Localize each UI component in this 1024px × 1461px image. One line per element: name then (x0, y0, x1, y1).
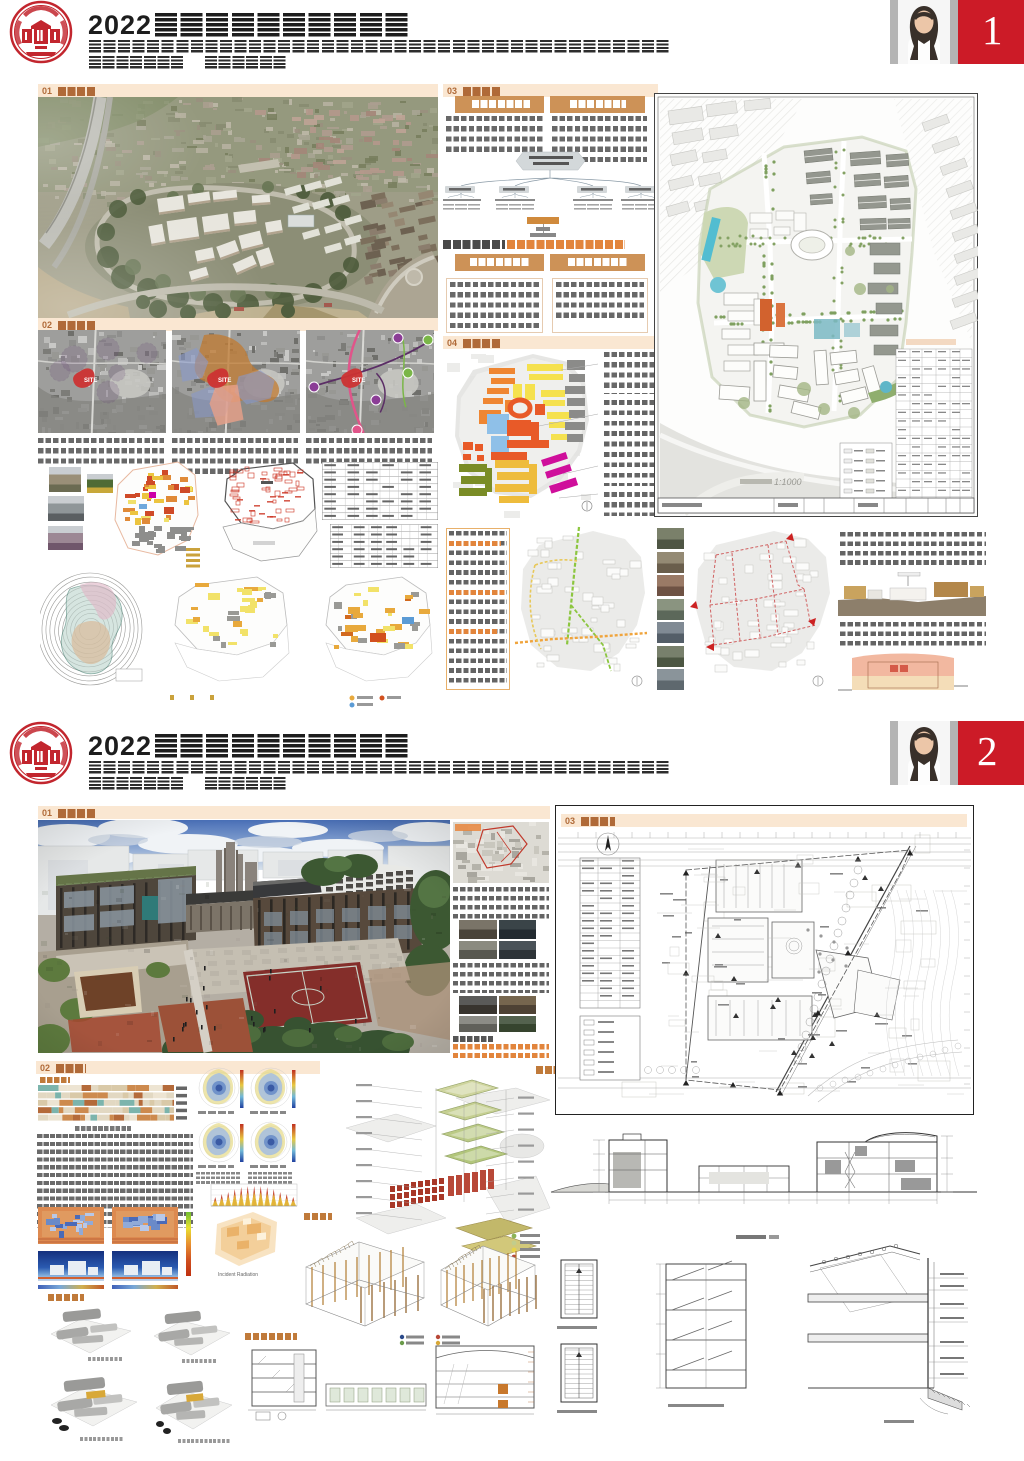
svg-text:SITE: SITE (218, 378, 231, 384)
svg-text:1:1000: 1:1000 (774, 477, 802, 487)
svg-text:SITE: SITE (352, 378, 365, 384)
svg-text:SITE: SITE (84, 378, 97, 384)
